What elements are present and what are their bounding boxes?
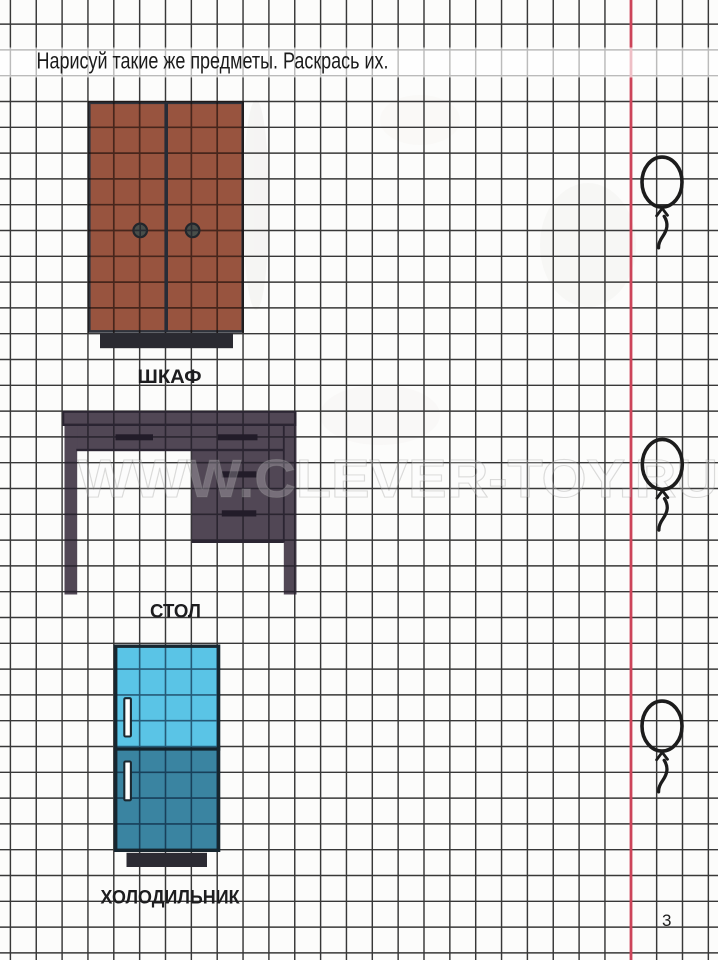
svg-text:ШКАФ: ШКАФ [138,367,202,388]
svg-text:Нарисуй такие же предметы. Рас: Нарисуй такие же предметы. Раскрась их. [37,48,389,74]
svg-text:СТОЛ: СТОЛ [150,600,201,622]
svg-text:ХОЛОДИЛЬНИК: ХОЛОДИЛЬНИК [101,887,240,909]
svg-text:3: 3 [662,911,671,930]
svg-text:WWW.CLEVER-TOY.RU: WWW.CLEVER-TOY.RU [78,449,718,509]
